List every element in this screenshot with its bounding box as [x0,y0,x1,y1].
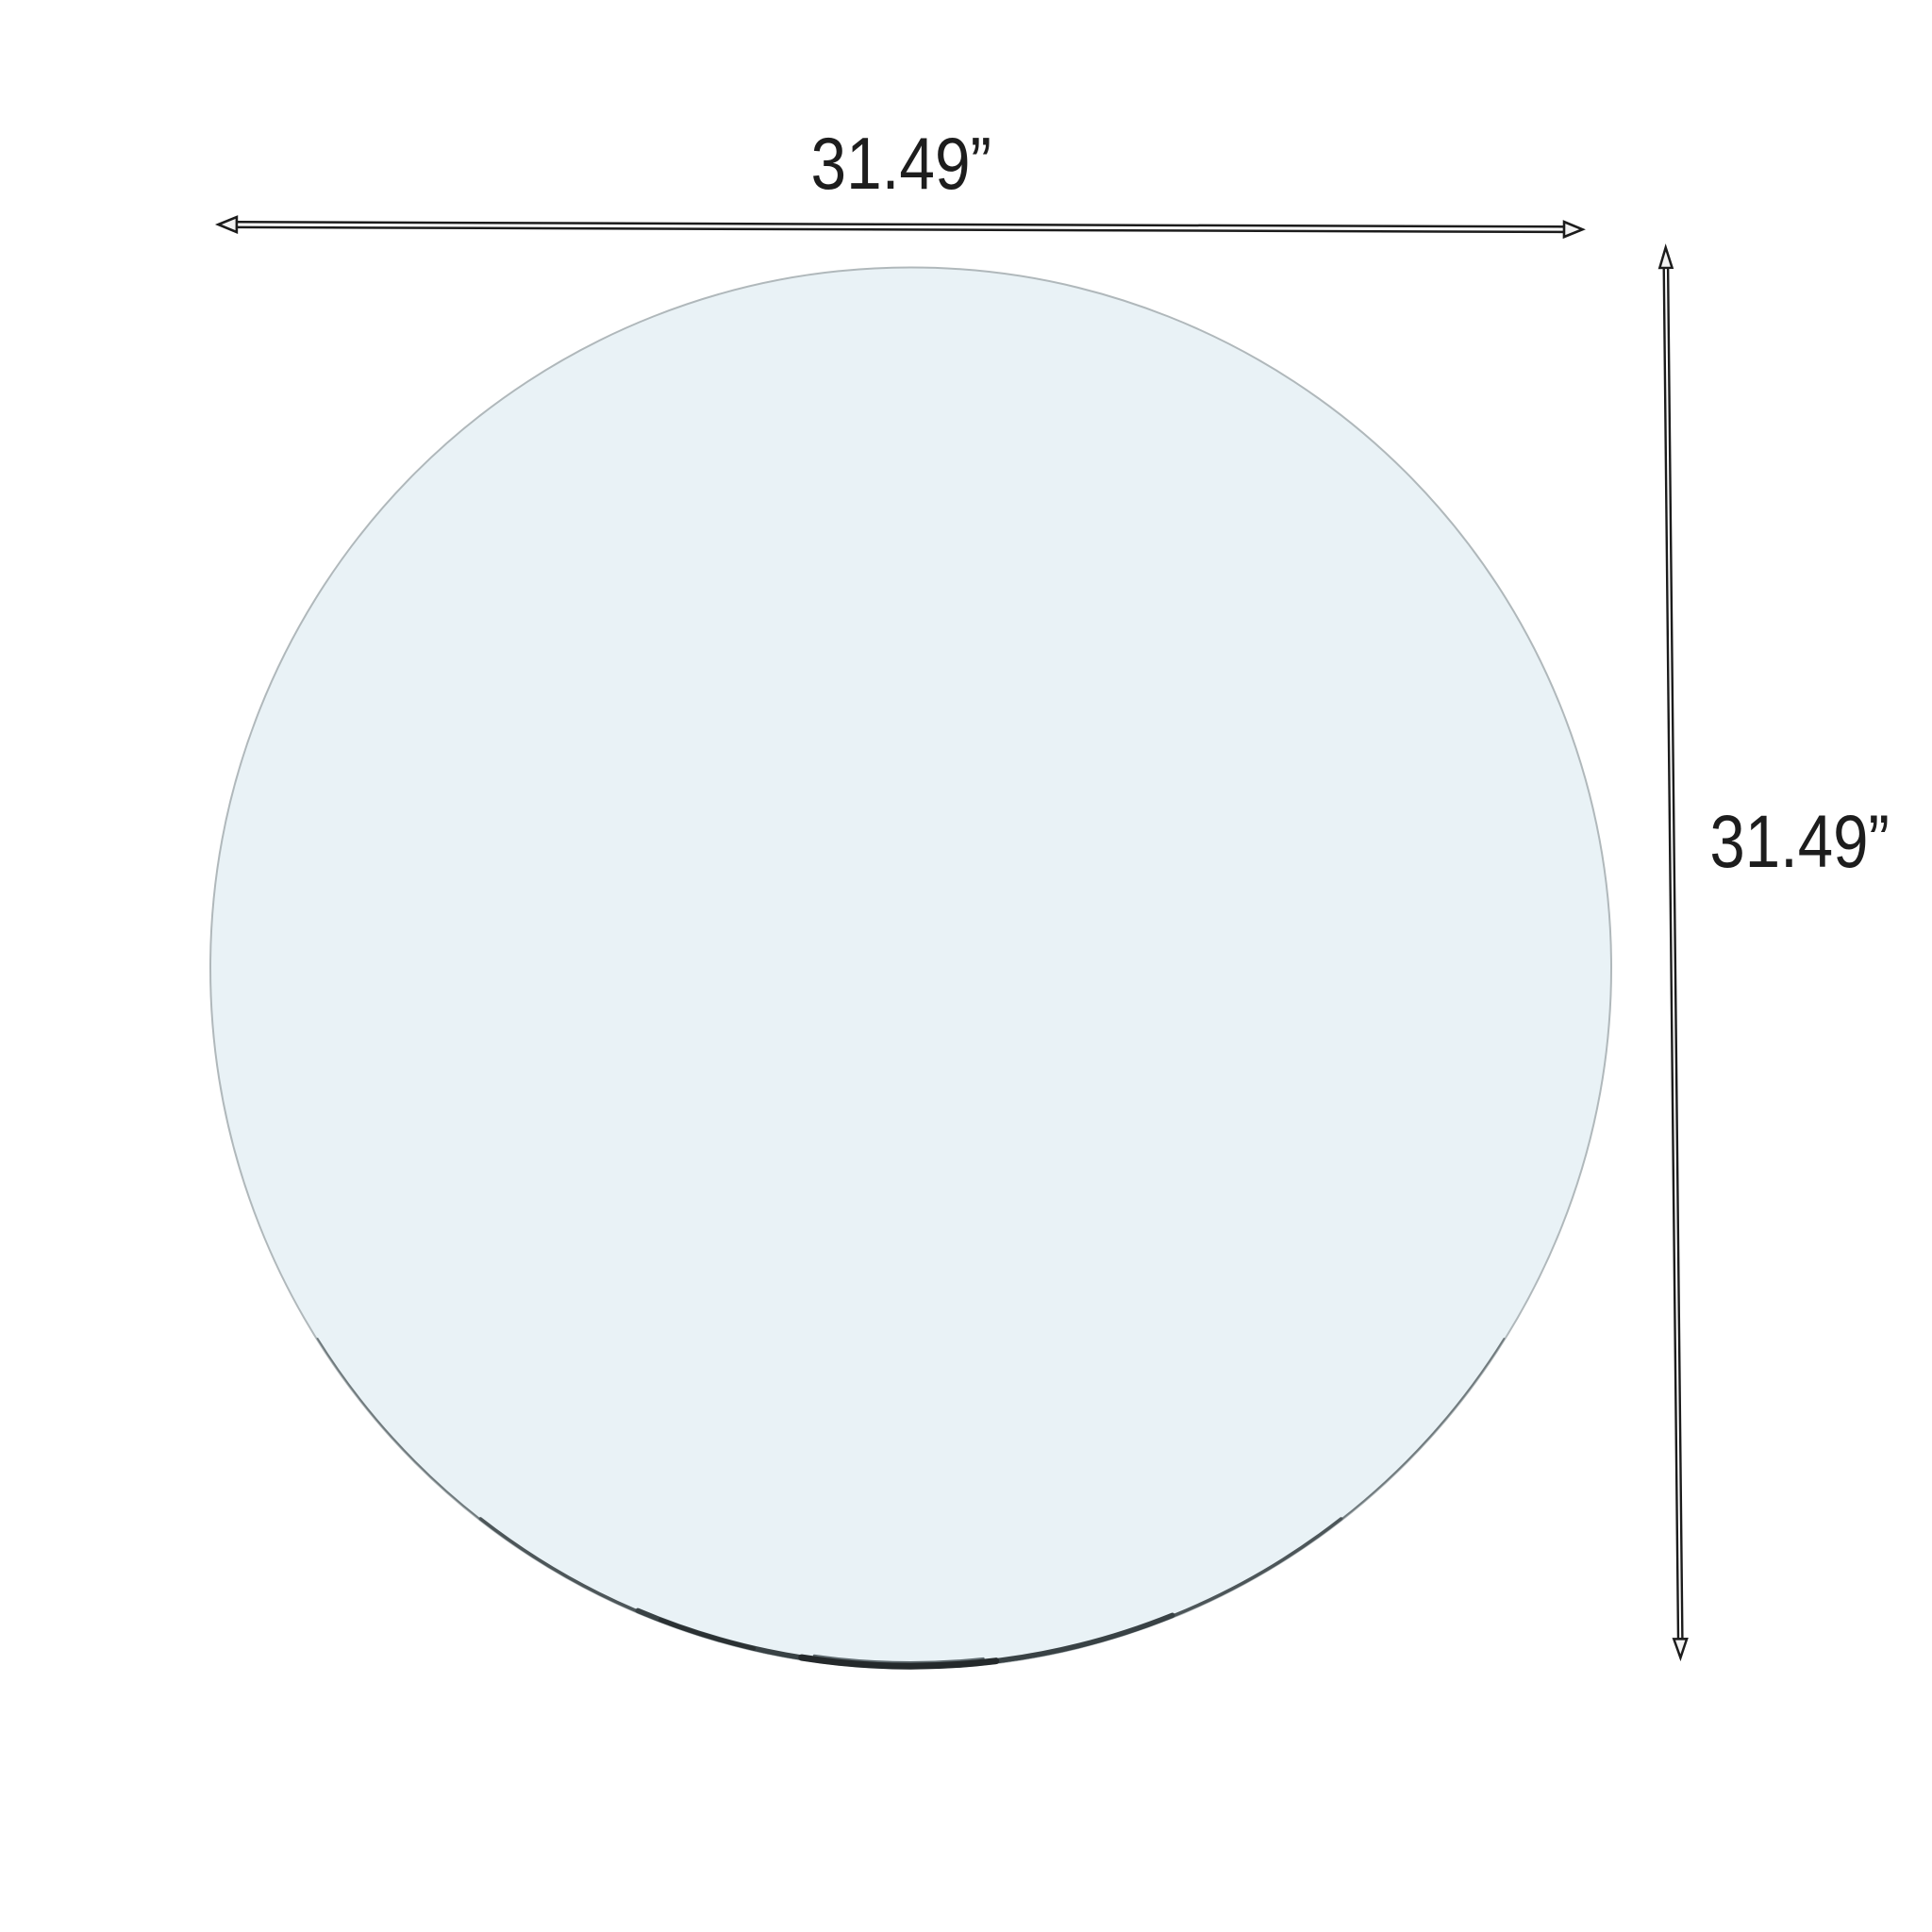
svg-text:31.49”: 31.49” [1709,799,1890,883]
svg-text:31.49”: 31.49” [811,122,992,205]
